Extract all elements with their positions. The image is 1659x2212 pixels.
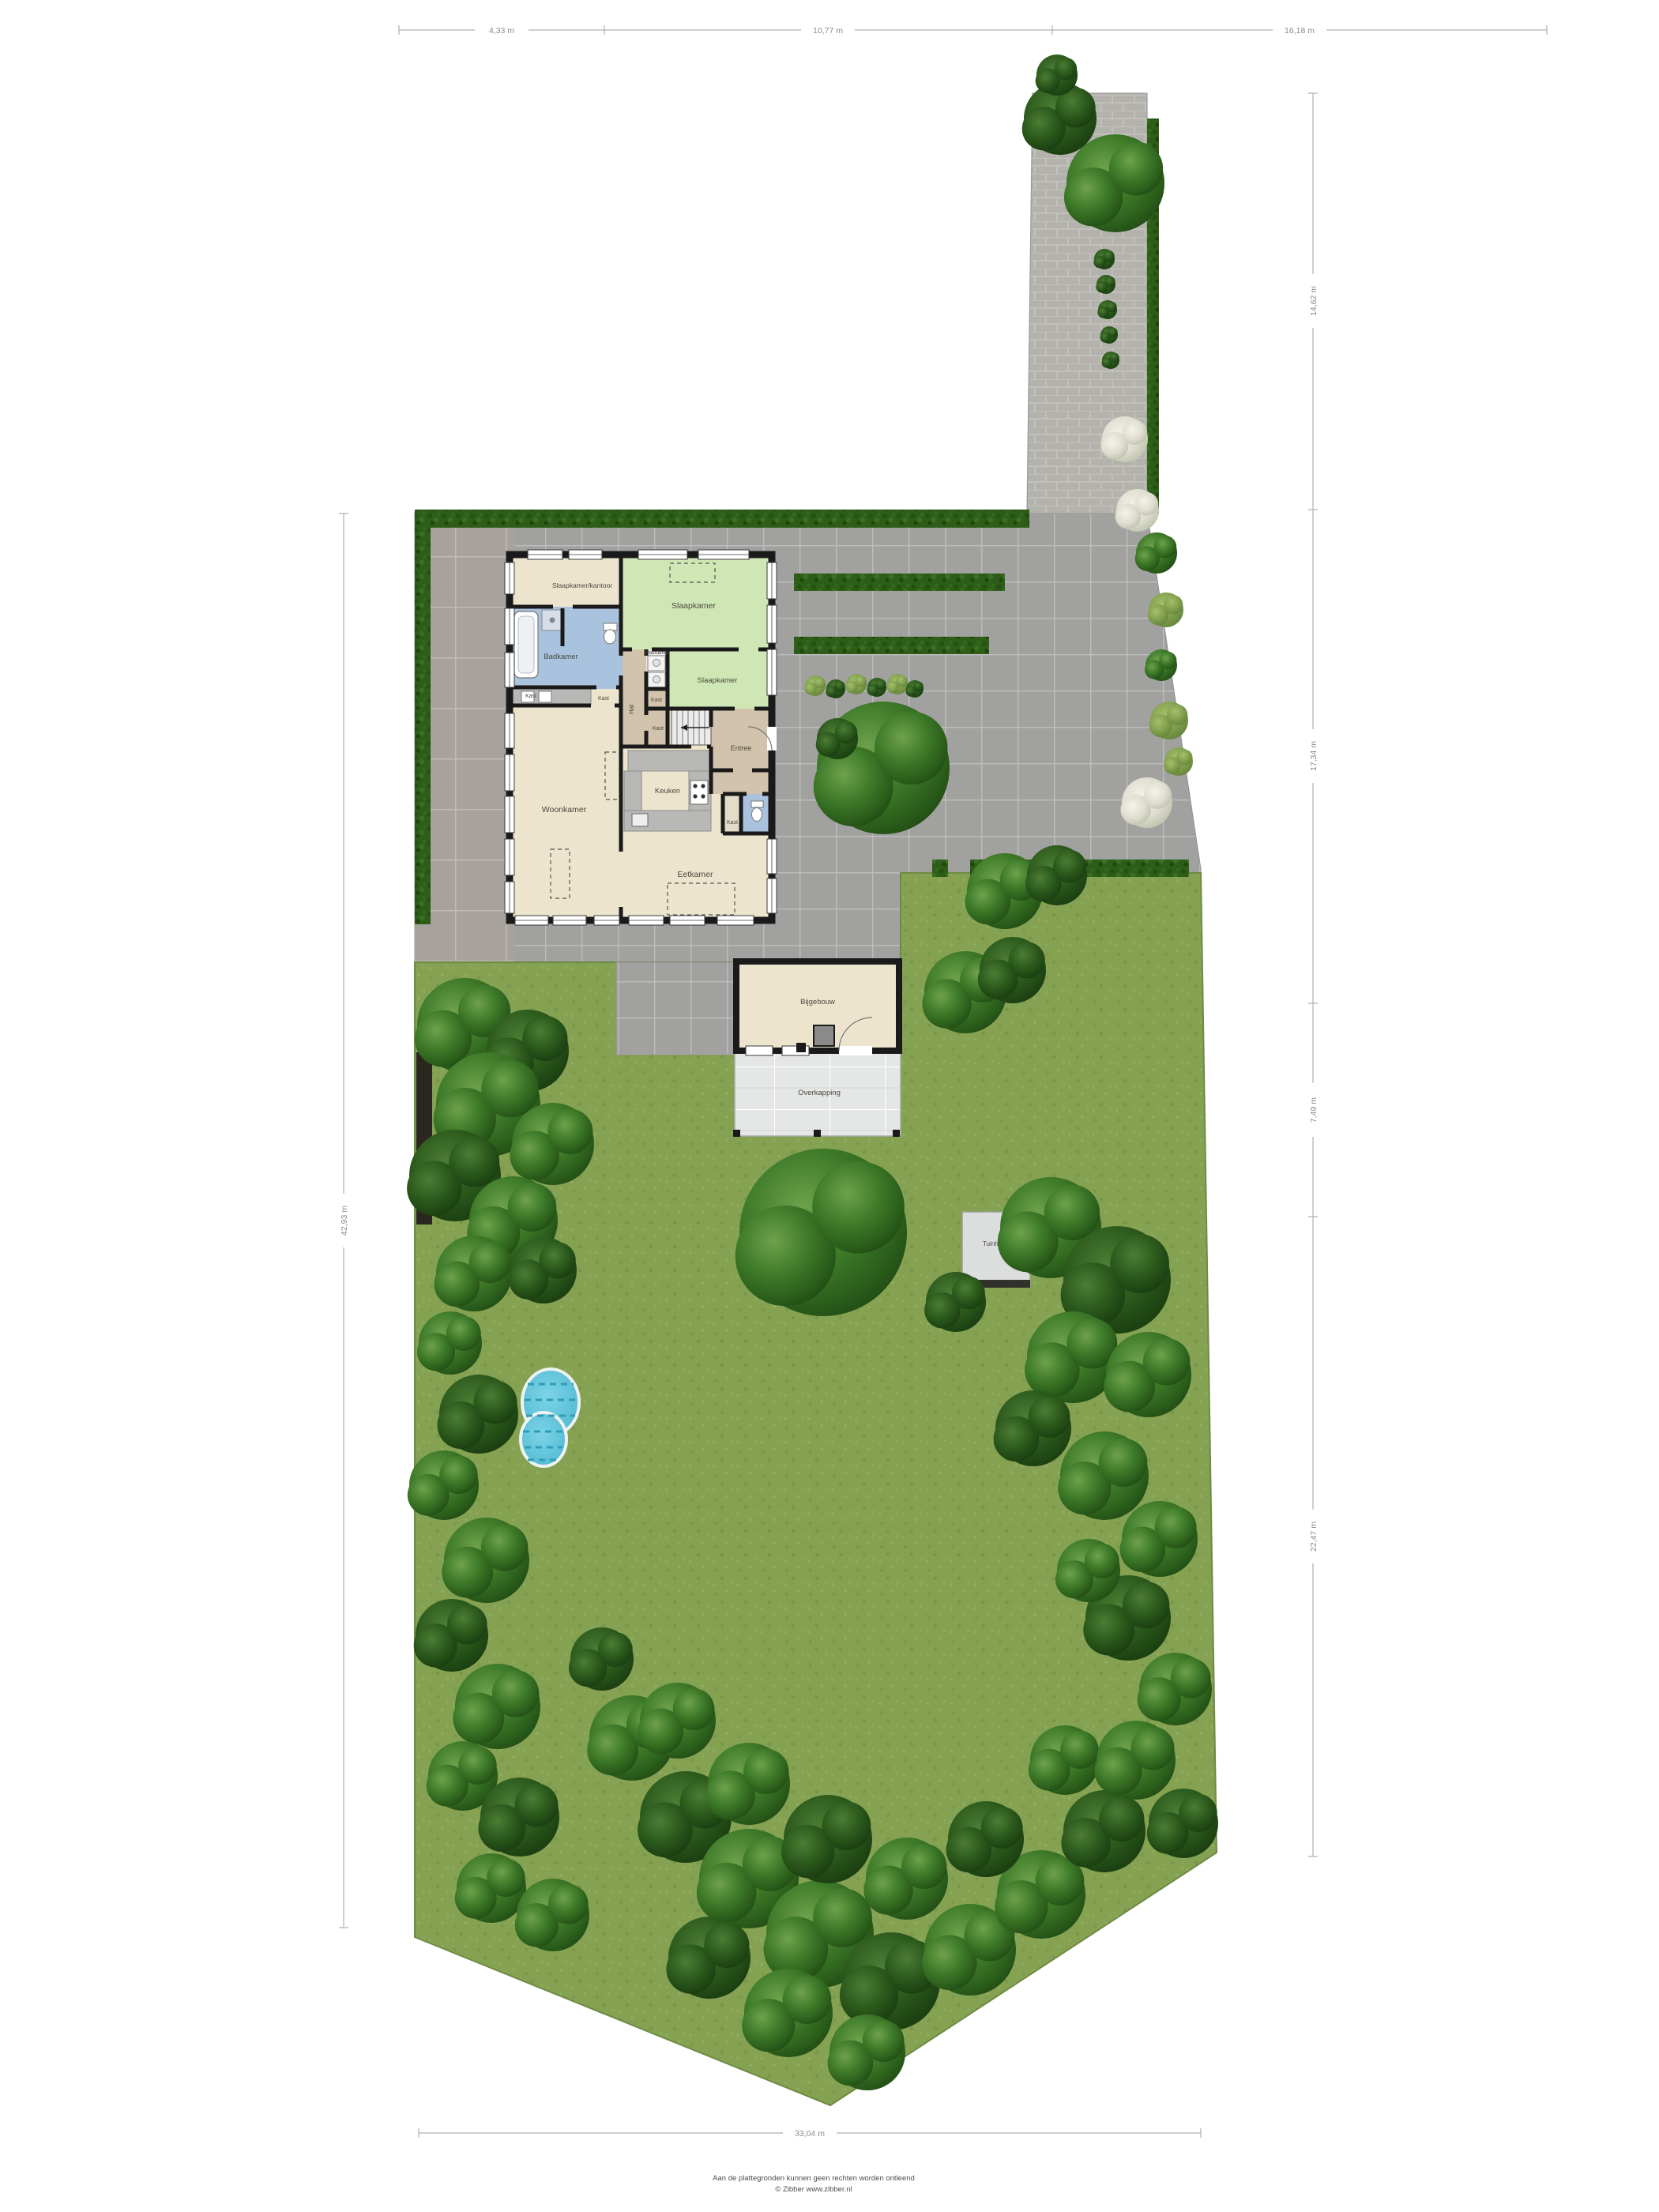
toilet-icon — [604, 623, 617, 644]
outbuilding: Bijgebouw — [736, 961, 899, 1055]
dim-label: 17,34 m — [1309, 741, 1319, 771]
hedge — [932, 860, 948, 877]
room-label: Slaapkamer/kantoor — [552, 581, 612, 589]
hedge — [415, 510, 1029, 528]
room-label: Entree — [731, 744, 752, 752]
dim-label: 22,47 m — [1309, 1522, 1319, 1552]
room-label: Kast — [598, 696, 609, 702]
room-label: Slaapkamer — [698, 676, 738, 685]
room-label: Woonkamer — [542, 805, 587, 814]
room-label: Wasruimte — [645, 650, 669, 656]
room-label: Kast — [651, 698, 662, 703]
dim-label: 7,49 m — [1309, 1097, 1319, 1123]
tree — [1036, 55, 1078, 96]
dim-label: 42,93 m — [340, 1206, 349, 1236]
outbuilding-label: Bijgebouw — [800, 998, 835, 1006]
canopy-label: Overkapping — [798, 1089, 841, 1097]
footer-disclaimer: Aan de plattegronden kunnen geen rechten… — [713, 2174, 915, 2183]
room-label: Eetkamer — [678, 870, 713, 879]
stairs — [671, 710, 711, 745]
room-label: Slaapkamer — [671, 601, 717, 611]
dim-label: 16,18 m — [1285, 26, 1315, 36]
room-label: Hal — [628, 705, 635, 714]
dim-label: 4,33 m — [489, 26, 514, 36]
room-label: Kast — [525, 694, 536, 699]
room-label: Keuken — [655, 787, 680, 796]
room-label: Kast — [727, 820, 738, 826]
room-label: Kast — [653, 726, 664, 732]
canopy: Overkapping — [733, 1049, 901, 1137]
dim-label: 10,77 m — [813, 26, 843, 36]
hedge — [794, 574, 1005, 591]
dim-label: 14,62 m — [1309, 286, 1319, 316]
room-label: Badkamer — [544, 653, 577, 661]
site-plan-page: Tuinhuis Overkapping Bijgebouw — [0, 0, 1659, 2212]
hedge — [794, 637, 989, 654]
hedge — [415, 513, 431, 924]
site-plan-drawing: Tuinhuis Overkapping Bijgebouw — [0, 0, 1659, 2212]
footer-credit: © Zibber www.zibber.nl — [775, 2185, 852, 2194]
house: Slaapkamer/kantoor Badkamer Slaapkamer S… — [505, 550, 777, 925]
toilet-icon — [751, 801, 763, 822]
dim-label: 33,04 m — [795, 2129, 825, 2139]
